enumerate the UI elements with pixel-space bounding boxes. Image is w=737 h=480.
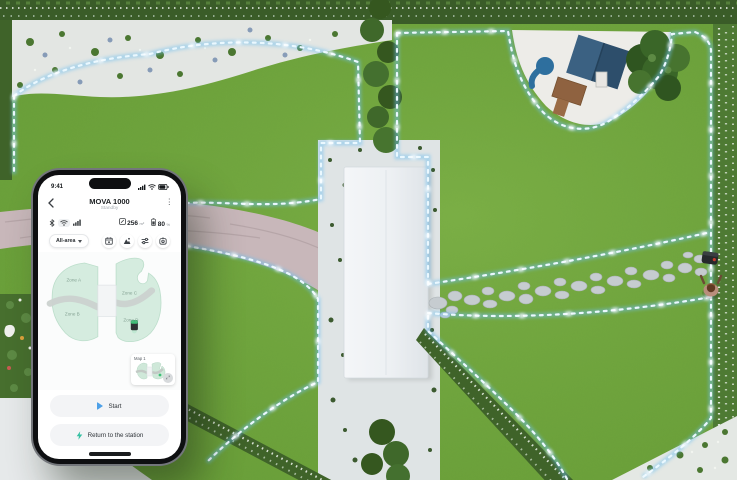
house-roof <box>344 167 432 380</box>
device-state: Standby <box>101 206 119 212</box>
map-view[interactable]: Zone A Zone B Zone C Zone D Map 1 ⤢ <box>38 252 181 390</box>
app-screen: 9:41 MOVA 1000 Standby ⋮ <box>38 175 181 459</box>
battery-icon <box>158 184 169 190</box>
ladder <box>596 72 607 87</box>
wifi-icon <box>60 220 68 226</box>
cellular-icon <box>138 184 146 190</box>
schedule-button[interactable] <box>102 234 116 248</box>
battery-icon <box>151 218 156 226</box>
clock: 9:41 <box>51 184 63 190</box>
wifi-icon <box>148 184 156 190</box>
remote-control-icon <box>159 237 167 245</box>
battery-stat: 80 % <box>151 218 170 228</box>
zone-label: Zone C <box>122 291 137 296</box>
flower-bed-left <box>0 294 36 398</box>
mowed-area-stat: 256 m² <box>119 218 145 227</box>
bluetooth-icon <box>49 219 55 227</box>
more-button[interactable]: ⋮ <box>166 196 174 207</box>
back-button[interactable] <box>47 198 55 208</box>
area-icon <box>119 218 126 225</box>
settings-button[interactable] <box>138 234 152 248</box>
phone-notch <box>89 178 131 189</box>
phone-mockup: 9:41 MOVA 1000 Standby ⋮ <box>33 170 186 464</box>
hero-image: 9:41 MOVA 1000 Standby ⋮ <box>0 0 737 480</box>
remote-button[interactable] <box>156 234 170 248</box>
zone-label: Zone A <box>66 277 81 282</box>
robot-mower <box>701 251 719 265</box>
chevron-down-icon <box>78 240 82 243</box>
zones-icon <box>123 237 131 245</box>
play-icon <box>97 402 103 410</box>
home-indicator[interactable] <box>89 452 131 456</box>
nav-header: MOVA 1000 Standby ⋮ <box>38 194 181 215</box>
device-status-row: 256 m² 80 % <box>38 215 181 230</box>
lightning-icon <box>76 431 83 440</box>
cellular-icon <box>73 219 81 226</box>
schedule-icon <box>105 237 113 245</box>
map-house <box>98 285 116 316</box>
zone-label: Zone D <box>123 317 138 322</box>
zones-button[interactable] <box>120 234 134 248</box>
zone-label: Zone B <box>65 312 80 317</box>
settings-icon <box>141 237 149 245</box>
mode-selector[interactable]: All-area <box>49 234 89 248</box>
toolbar: All-area <box>38 230 181 252</box>
map-expand-button[interactable]: ⤢ <box>163 373 173 383</box>
return-to-station-button[interactable]: Return to the station <box>50 424 169 446</box>
page-title: MOVA 1000 <box>89 198 129 206</box>
flower-border-right <box>713 24 737 480</box>
map-card[interactable]: Map 1 ⤢ <box>131 354 175 385</box>
action-buttons: Start Return to the station <box>38 390 181 449</box>
hedge-left-edge <box>0 20 12 180</box>
start-button[interactable]: Start <box>50 395 169 417</box>
home-indicator-area <box>38 449 181 459</box>
